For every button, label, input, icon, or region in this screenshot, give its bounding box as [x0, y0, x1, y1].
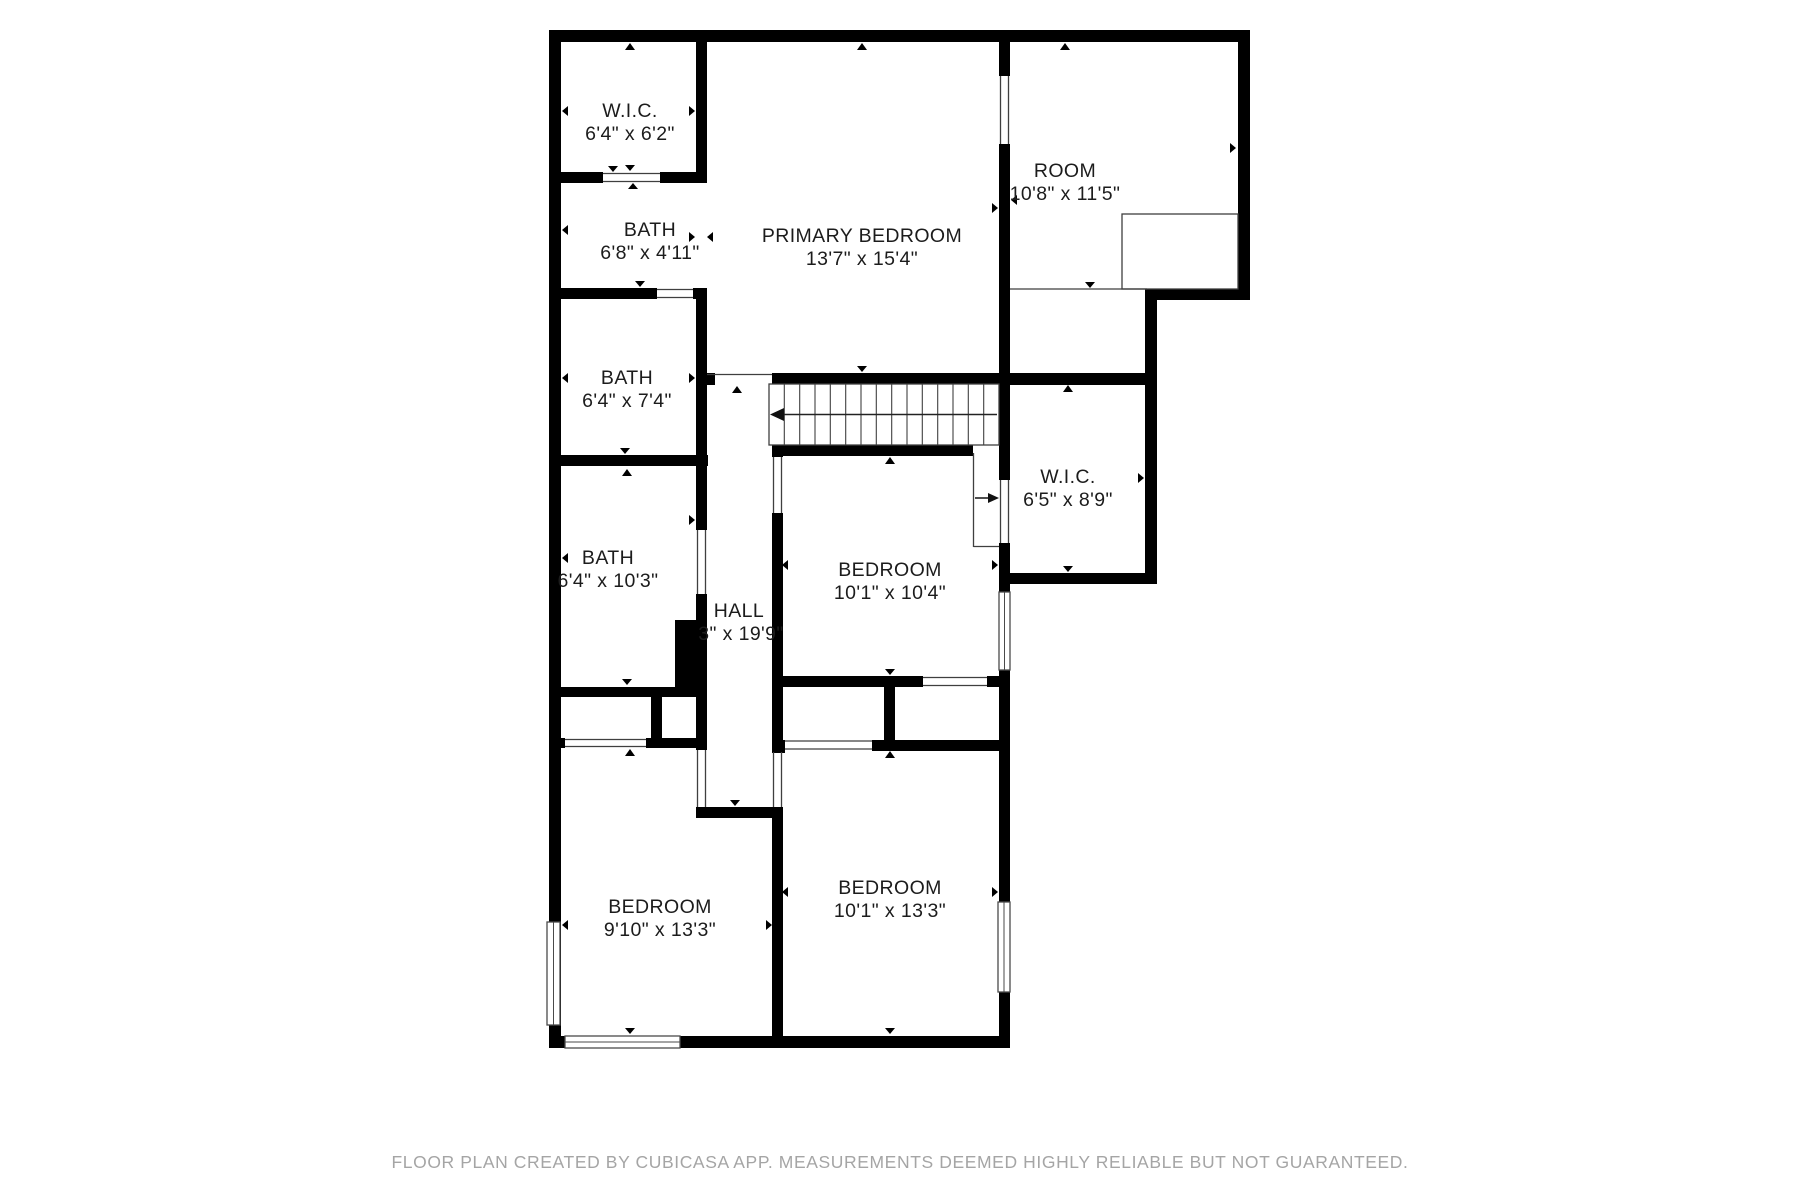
svg-text:10'8" x 11'5": 10'8" x 11'5"	[1010, 183, 1121, 205]
svg-text:6'4" x 10'3": 6'4" x 10'3"	[558, 570, 659, 592]
room-label-bath-middle: BATH 6'4" x 7'4"	[582, 367, 672, 412]
window-right-bedroom	[998, 902, 1010, 992]
svg-text:BATH: BATH	[582, 547, 634, 569]
room-label-bedroom-bottom-left: BEDROOM 9'10" x 13'3"	[604, 896, 716, 941]
room-label-bath-lower: BATH 6'4" x 10'3"	[558, 547, 659, 592]
svg-text:3" x 19'9": 3" x 19'9"	[698, 623, 784, 645]
svg-text:BATH: BATH	[624, 219, 676, 241]
svg-text:9'10" x 13'3": 9'10" x 13'3"	[604, 919, 716, 941]
svg-text:BEDROOM: BEDROOM	[608, 896, 712, 918]
svg-text:6'8" x 4'11": 6'8" x 4'11"	[600, 242, 699, 264]
room-label-room: ROOM 10'8" x 11'5"	[1010, 160, 1121, 205]
window-left-bedroom	[547, 922, 560, 1025]
svg-text:10'1" x 13'3": 10'1" x 13'3"	[834, 900, 946, 922]
footer-disclaimer: FLOOR PLAN CREATED BY CUBICASA APP. MEAS…	[391, 1152, 1408, 1172]
svg-text:13'7" x 15'4": 13'7" x 15'4"	[806, 248, 918, 270]
room-label-primary-bedroom: PRIMARY BEDROOM 13'7" x 15'4"	[762, 225, 962, 270]
svg-text:BEDROOM: BEDROOM	[838, 559, 942, 581]
staircase	[769, 384, 999, 445]
wic-entry-arrow-icon	[975, 493, 999, 503]
floor-plan: W.I.C. 6'4" x 6'2" BATH 6'8" x 4'11" BAT…	[0, 0, 1800, 1200]
svg-text:10'1" x 10'4": 10'1" x 10'4"	[834, 582, 946, 604]
svg-text:W.I.C.: W.I.C.	[1040, 466, 1095, 488]
room-label-hall: HALL 3" x 19'9"	[698, 600, 784, 645]
svg-text:ROOM: ROOM	[1034, 160, 1096, 182]
room-label-bedroom-middle: BEDROOM 10'1" x 10'4"	[834, 559, 946, 604]
svg-text:6'4" x 6'2": 6'4" x 6'2"	[585, 123, 675, 145]
room-labels: W.I.C. 6'4" x 6'2" BATH 6'8" x 4'11" BAT…	[558, 100, 1121, 941]
svg-text:W.I.C.: W.I.C.	[602, 100, 657, 122]
svg-text:6'4" x 7'4": 6'4" x 7'4"	[582, 390, 672, 412]
room-label-bedroom-bottom-right: BEDROOM 10'1" x 13'3"	[834, 877, 946, 922]
window-bottom-bedroom	[565, 1036, 680, 1048]
room-label-wic-top: W.I.C. 6'4" x 6'2"	[585, 100, 675, 145]
svg-text:PRIMARY BEDROOM: PRIMARY BEDROOM	[762, 225, 962, 247]
svg-text:BEDROOM: BEDROOM	[838, 877, 942, 899]
svg-text:6'5" x 8'9": 6'5" x 8'9"	[1023, 489, 1113, 511]
room-label-wic-right: W.I.C. 6'5" x 8'9"	[1023, 466, 1113, 511]
room-label-bath-ensuite: BATH 6'8" x 4'11"	[600, 219, 699, 264]
window-middle-bedroom	[999, 592, 1010, 670]
svg-text:HALL: HALL	[714, 600, 764, 622]
svg-text:BATH: BATH	[601, 367, 653, 389]
